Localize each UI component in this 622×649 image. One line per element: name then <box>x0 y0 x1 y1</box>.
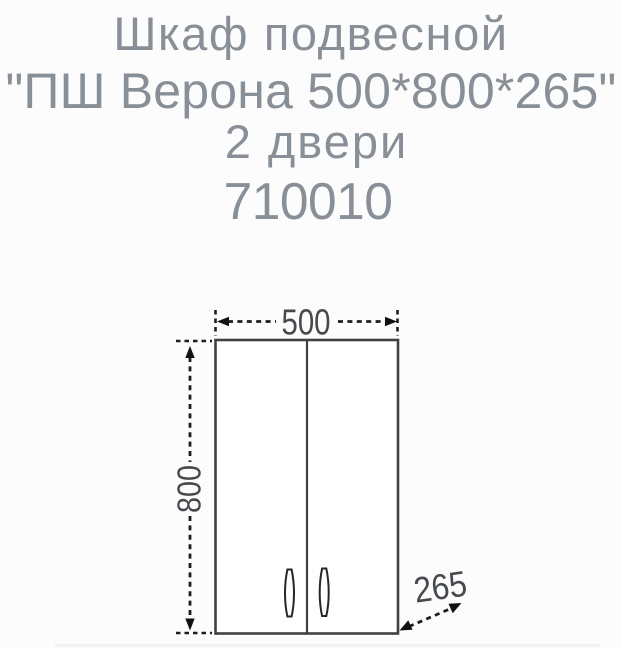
svg-text:500: 500 <box>282 302 331 343</box>
svg-text:800: 800 <box>171 465 208 513</box>
svg-text:265: 265 <box>411 563 469 611</box>
